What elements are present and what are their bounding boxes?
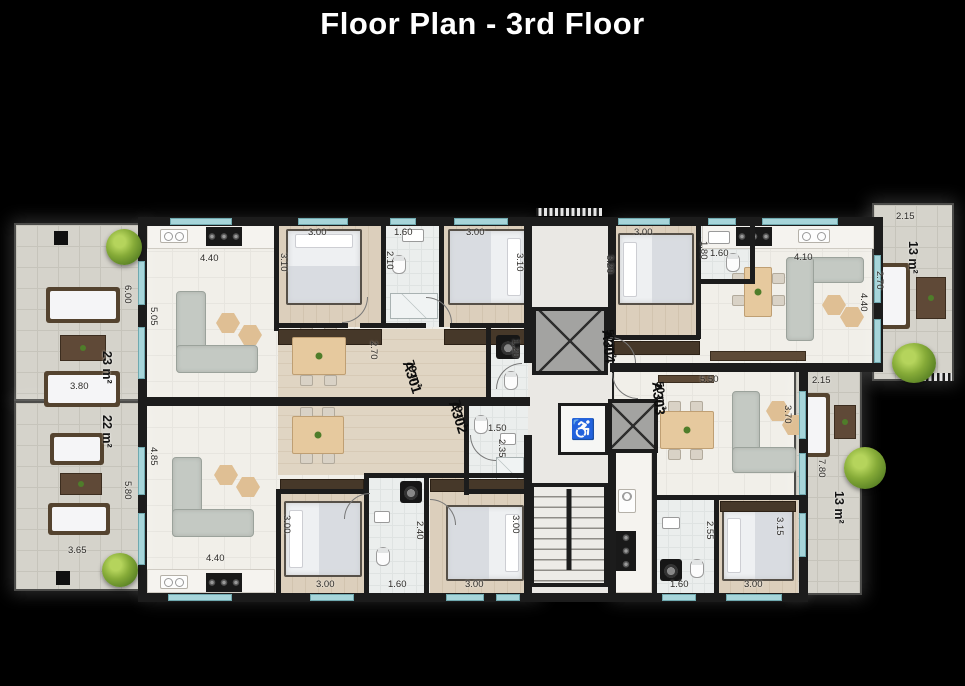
dim-label: 3.00	[634, 227, 653, 238]
plant	[844, 447, 886, 489]
balcony-table	[60, 473, 102, 495]
dim-label: 6.00	[122, 285, 133, 304]
window	[298, 218, 348, 225]
toilet	[474, 415, 488, 434]
dim-label: 5.05	[148, 307, 159, 326]
apartment-id: A303	[649, 381, 667, 416]
window	[446, 594, 484, 601]
dim-label: 4.40	[206, 553, 225, 564]
dim-label: 1.60	[388, 579, 407, 590]
dim-label: 3.00	[510, 515, 521, 534]
window	[799, 391, 806, 439]
a301-sofa	[176, 345, 258, 373]
floor-plan: ♿	[10, 195, 955, 625]
window	[662, 594, 696, 601]
wardrobe	[720, 501, 796, 512]
dim-label: 2.40	[414, 521, 425, 540]
dim-label: 3.00	[316, 579, 335, 590]
partition	[486, 327, 491, 397]
chair	[668, 449, 681, 460]
stair-stringer	[567, 489, 572, 570]
window	[138, 513, 145, 565]
a304-sofa	[786, 257, 814, 341]
a301-bed1	[286, 229, 362, 305]
dim-label: 2.15	[896, 211, 915, 222]
sideboard	[710, 351, 806, 361]
dim-label: 3.10	[278, 253, 289, 272]
chair	[772, 295, 785, 306]
chair	[690, 449, 703, 460]
chair	[324, 375, 337, 386]
a302-dining-table	[292, 416, 344, 454]
a304-dining-table	[744, 267, 772, 317]
a303-kitchen-sink	[618, 489, 636, 513]
dim-label: 2.10	[384, 251, 395, 270]
plant	[102, 553, 138, 587]
dim-label: 1.50	[488, 423, 507, 434]
dim-label: 3.80	[70, 381, 89, 392]
a303-stove	[616, 531, 636, 571]
wheelchair-icon: ♿	[571, 417, 596, 442]
chair	[772, 273, 785, 284]
window	[762, 218, 838, 225]
dim-label: 4.85	[148, 447, 159, 466]
balcony-table	[916, 277, 946, 319]
plant	[892, 343, 936, 383]
partition	[714, 495, 719, 593]
window	[138, 327, 145, 379]
a303-dining-table	[660, 411, 714, 449]
a304-bed	[618, 233, 694, 305]
wall-corridor-left-b	[524, 435, 532, 602]
dim-label: 2.15	[812, 375, 831, 386]
window	[168, 594, 232, 601]
dim-label: 3.00	[744, 579, 763, 590]
dim-label: 3.70	[782, 405, 793, 424]
partition	[750, 217, 755, 283]
wall-corridor-right-b	[608, 453, 616, 602]
dim-label: 3.20	[604, 255, 615, 274]
balcony-sofa	[50, 433, 104, 465]
dim-label: 2.35	[496, 439, 507, 458]
balcony-area-label: 23 m²	[100, 351, 114, 384]
window	[390, 218, 416, 225]
window	[799, 513, 806, 557]
apartment-id: A304	[599, 329, 617, 364]
plant	[106, 229, 142, 265]
dim-label: 3.00	[308, 227, 327, 238]
wall-corridor-right-a	[608, 217, 616, 339]
dim-label: 4.40	[200, 253, 219, 264]
a302-sofa	[172, 509, 254, 537]
dim-label: 1.20	[510, 339, 521, 358]
window	[726, 594, 782, 601]
chair	[300, 453, 313, 464]
elevator-shaft-1	[532, 307, 608, 375]
a303-kitchen-counter	[614, 447, 652, 593]
toilet	[690, 559, 704, 578]
dim-label: 3.65	[68, 545, 87, 556]
partition	[276, 489, 281, 593]
partition	[464, 489, 532, 494]
dim-label: 3.00	[465, 579, 484, 590]
balcony-sofa	[46, 287, 120, 323]
wall-corridor-left-a	[524, 217, 532, 363]
dim-label: 5.50	[700, 374, 719, 385]
balcony-area-label: 22 m²	[100, 415, 114, 448]
dim-label: 2.55	[704, 521, 715, 540]
wall-divider-right	[610, 363, 882, 372]
a301-stove	[206, 227, 242, 246]
window	[310, 594, 354, 601]
balcony-sofa	[48, 503, 110, 535]
dim-label: 1.60	[670, 579, 689, 590]
partition	[696, 217, 701, 339]
wall-divider-left	[138, 397, 530, 406]
washing-machine	[660, 559, 682, 581]
window	[138, 261, 145, 305]
balcony-table	[834, 405, 856, 439]
vent-grille	[536, 208, 602, 216]
toilet	[376, 547, 390, 566]
partition	[700, 279, 755, 284]
dim-label: 3.00	[281, 515, 292, 534]
partition	[276, 489, 366, 494]
column	[56, 571, 70, 585]
window	[496, 594, 520, 601]
a303-sofa	[732, 447, 796, 473]
partition	[652, 445, 657, 593]
dim-label: 2.70	[874, 271, 885, 290]
window	[454, 218, 508, 225]
window	[874, 319, 881, 363]
partition	[364, 473, 528, 478]
a302-stove	[206, 573, 242, 592]
dim-label: 4.40	[858, 293, 869, 312]
partition	[274, 323, 348, 328]
dim-label: 2.70	[368, 341, 379, 360]
dim-label: 4.10	[794, 252, 813, 263]
dim-label: 3.00	[466, 227, 485, 238]
a301-kitchen-sink	[160, 229, 188, 243]
staircase	[530, 483, 608, 587]
partition	[381, 217, 386, 327]
elevator-shaft-2	[608, 399, 658, 453]
partition	[360, 323, 426, 328]
page-title: Floor Plan - 3rd Floor	[0, 6, 965, 42]
dim-label: 7.80	[816, 459, 827, 478]
partition	[614, 335, 700, 340]
window	[708, 218, 736, 225]
sink	[662, 517, 680, 529]
window	[799, 453, 806, 495]
window	[138, 447, 145, 495]
dim-label: 1.80	[698, 241, 709, 260]
partition	[364, 473, 369, 593]
dim-label: 5.80	[122, 481, 133, 500]
column	[54, 231, 68, 245]
chair	[300, 375, 313, 386]
a301-dining-table	[292, 337, 346, 375]
dim-label: 1.60	[710, 248, 729, 259]
sink	[374, 511, 390, 523]
partition	[274, 217, 279, 331]
chair	[322, 453, 335, 464]
accessible-wc: ♿	[558, 403, 608, 455]
dim-label: 1.60	[394, 227, 413, 238]
balcony-area-label: 13 m²	[906, 241, 920, 274]
dim-label: 3.15	[774, 517, 785, 536]
a302-kitchen-sink	[160, 575, 188, 589]
sink	[708, 231, 730, 244]
window	[618, 218, 670, 225]
partition	[652, 495, 802, 500]
washing-machine	[400, 481, 422, 503]
window	[170, 218, 232, 225]
a304-kitchen-sink	[798, 229, 830, 243]
dim-label: 3.10	[514, 253, 525, 272]
balcony-area-label: 13 m²	[832, 491, 846, 524]
